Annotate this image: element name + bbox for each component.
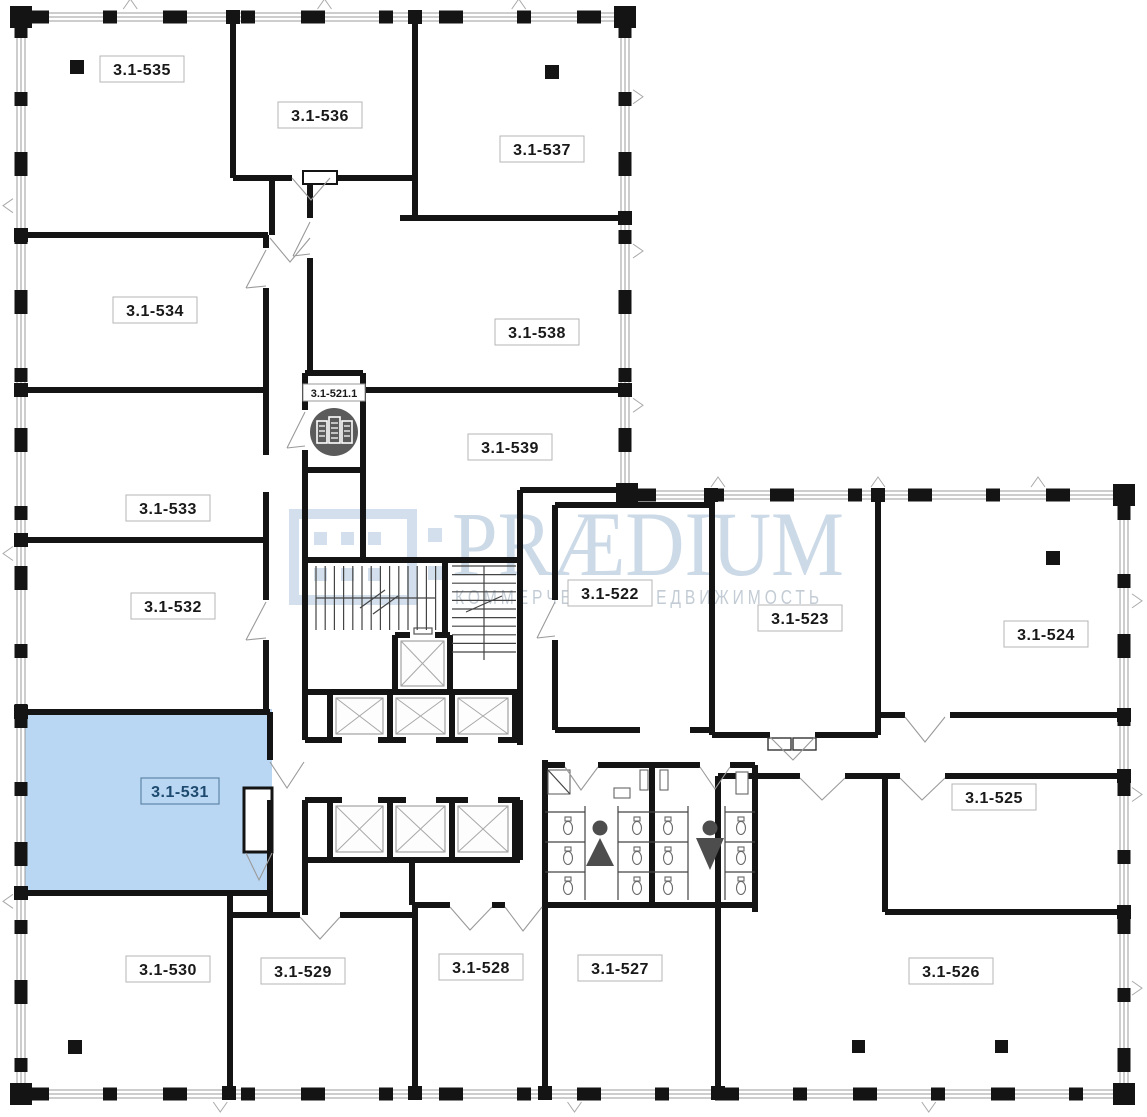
room-label-534: 3.1-534 [113, 297, 197, 323]
room-label-533: 3.1-533 [126, 495, 210, 521]
svg-text:3.1-537: 3.1-537 [513, 142, 571, 159]
room-label-527: 3.1-527 [578, 955, 662, 981]
svg-text:3.1-522: 3.1-522 [581, 586, 639, 603]
room-label-526: 3.1-526 [909, 958, 993, 984]
svg-text:3.1-539: 3.1-539 [481, 440, 539, 457]
floor-plan-page: PRÆDIUM КОММЕРЧЕСКАЯ НЕДВИЖИМОСТЬ [0, 0, 1147, 1117]
highlighted-room-531[interactable] [25, 709, 272, 896]
room-label-532: 3.1-532 [131, 593, 215, 619]
room-label-537: 3.1-537 [500, 136, 584, 162]
svg-text:3.1-527: 3.1-527 [591, 961, 649, 978]
room-label-522: 3.1-522 [568, 580, 652, 606]
unit-badge-521-1: 3.1-521.1 [303, 384, 365, 456]
svg-text:3.1-528: 3.1-528 [452, 960, 510, 977]
room-label-536: 3.1-536 [278, 102, 362, 128]
svg-text:3.1-538: 3.1-538 [508, 325, 566, 342]
room-label-538: 3.1-538 [495, 319, 579, 345]
svg-text:3.1-531: 3.1-531 [151, 784, 209, 801]
svg-text:3.1-526: 3.1-526 [922, 964, 980, 981]
room-label-539: 3.1-539 [468, 434, 552, 460]
elevator-cabins [336, 641, 508, 852]
room-label-535: 3.1-535 [100, 56, 184, 82]
room-label-524: 3.1-524 [1004, 621, 1088, 647]
svg-text:3.1-525: 3.1-525 [965, 790, 1023, 807]
building-location-icon [310, 408, 358, 456]
room-label-523: 3.1-523 [758, 605, 842, 631]
svg-text:3.1-535: 3.1-535 [113, 62, 171, 79]
room-label-528: 3.1-528 [439, 954, 523, 980]
svg-text:3.1-533: 3.1-533 [139, 501, 197, 518]
floor-plan-canvas: PRÆDIUM КОММЕРЧЕСКАЯ НЕДВИЖИМОСТЬ [0, 0, 1147, 1117]
svg-text:3.1-534: 3.1-534 [126, 303, 184, 320]
wall-details [303, 171, 816, 750]
svg-text:3.1-532: 3.1-532 [144, 599, 202, 616]
svg-text:3.1-530: 3.1-530 [139, 962, 197, 979]
svg-text:3.1-529: 3.1-529 [274, 964, 332, 981]
women-restroom-icon [586, 821, 614, 867]
room-label-529: 3.1-529 [261, 958, 345, 984]
svg-text:3.1-536: 3.1-536 [291, 108, 349, 125]
unit-badge-label: 3.1-521.1 [311, 388, 357, 400]
room-label-530: 3.1-530 [126, 956, 210, 982]
svg-text:3.1-524: 3.1-524 [1017, 627, 1075, 644]
svg-text:3.1-523: 3.1-523 [771, 611, 829, 628]
room-label-525: 3.1-525 [952, 784, 1036, 810]
